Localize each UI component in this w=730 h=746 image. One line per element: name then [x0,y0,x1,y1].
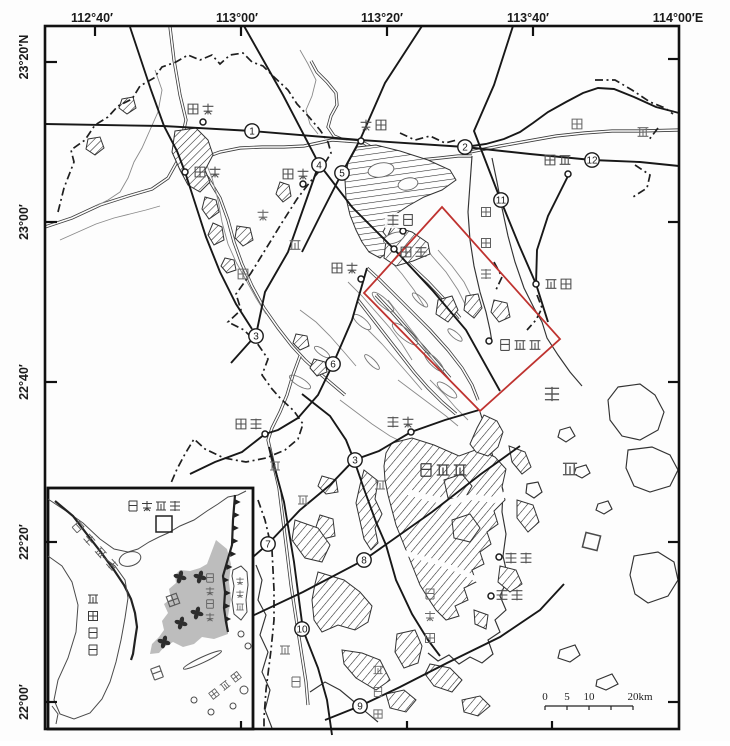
svg-text:23°00′: 23°00′ [17,204,31,240]
svg-text:6: 6 [330,359,336,370]
svg-text:22°00′: 22°00′ [17,684,31,720]
svg-text:11: 11 [496,195,507,206]
svg-text:23°20′N: 23°20′N [17,35,31,80]
svg-text:8: 8 [361,555,367,566]
svg-text:20km: 20km [627,691,653,703]
svg-text:113°00′: 113°00′ [216,11,258,25]
svg-text:1: 1 [249,126,255,137]
svg-text:3: 3 [352,455,358,466]
svg-text:5: 5 [339,168,345,179]
svg-text:22°20′: 22°20′ [17,524,31,560]
svg-text:7: 7 [265,539,271,550]
svg-text:113°40′: 113°40′ [507,11,549,25]
svg-text:22°40′: 22°40′ [17,364,31,400]
svg-text:112°40′: 112°40′ [71,11,113,25]
svg-text:4: 4 [316,160,322,171]
svg-text:2: 2 [462,142,468,153]
svg-text:0: 0 [542,691,548,703]
svg-text:9: 9 [357,701,363,712]
svg-text:10: 10 [584,691,596,703]
svg-text:114°00′E: 114°00′E [653,11,703,25]
svg-text:12: 12 [586,155,598,166]
svg-text:3: 3 [253,331,259,342]
svg-text:113°20′: 113°20′ [361,11,403,25]
svg-text:10: 10 [296,624,308,635]
svg-text:5: 5 [564,691,570,703]
